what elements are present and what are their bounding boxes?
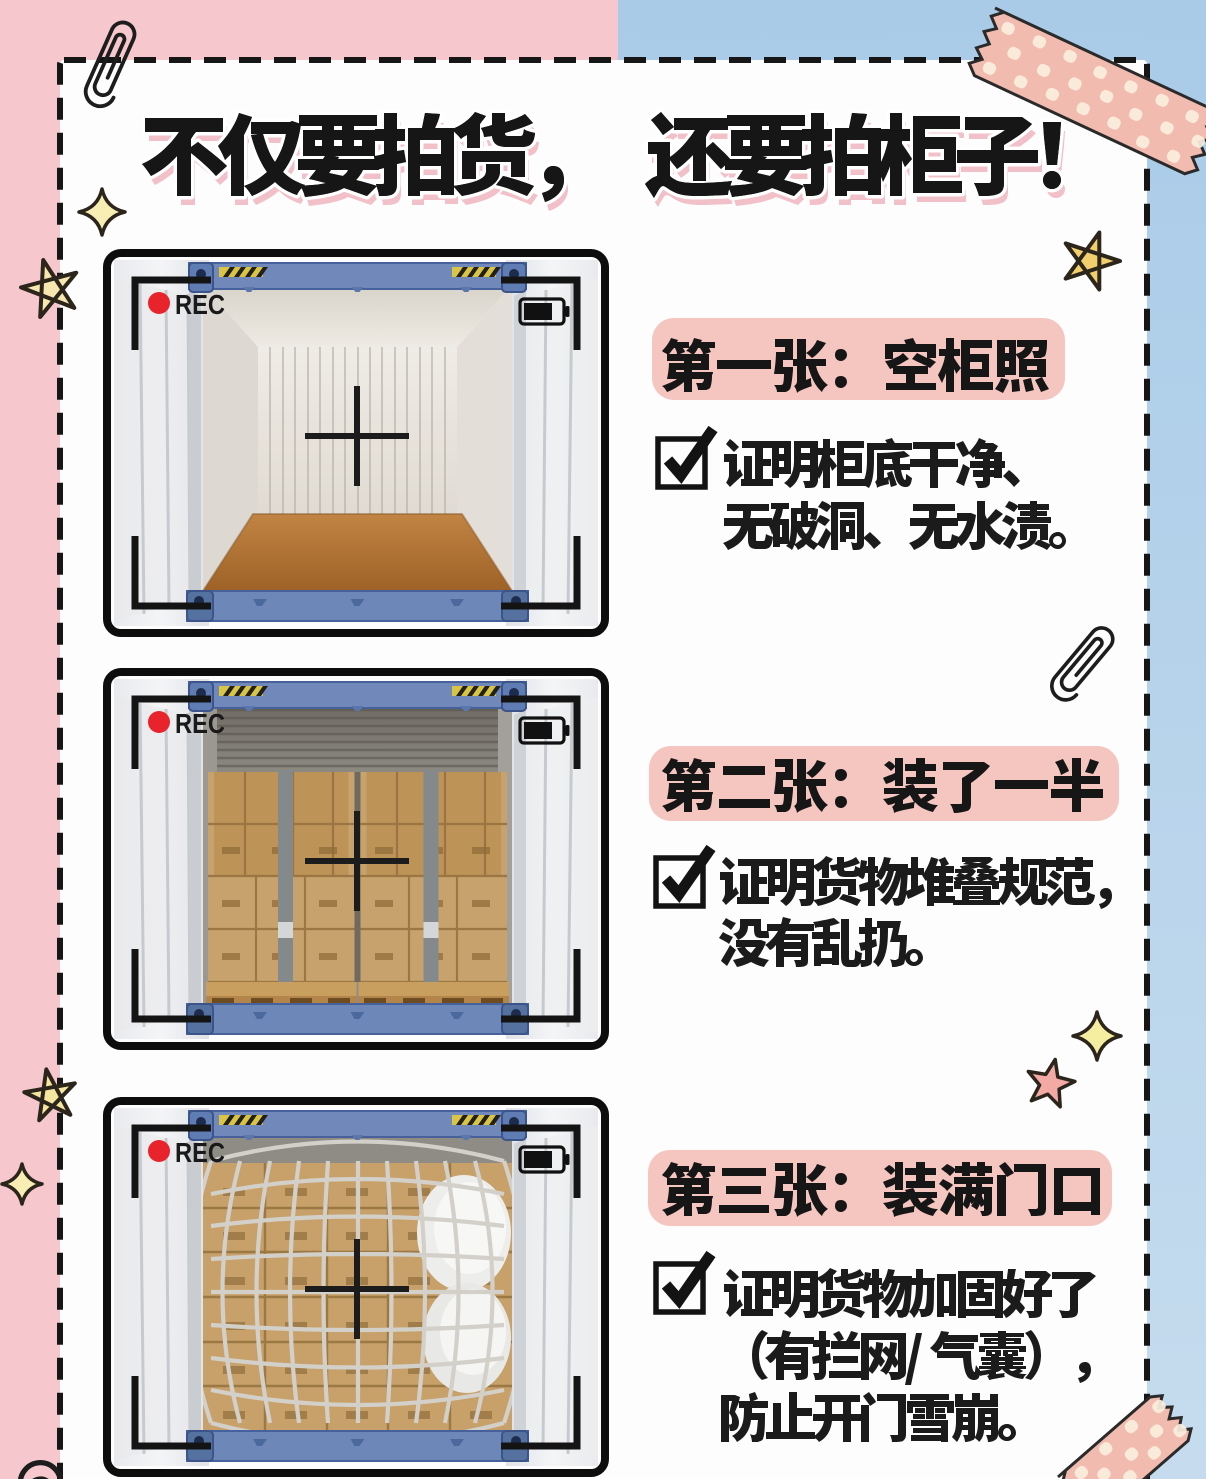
svg-text:REC: REC	[175, 708, 225, 739]
svg-text:REC: REC	[175, 289, 225, 320]
svg-text:REC: REC	[175, 1137, 225, 1168]
